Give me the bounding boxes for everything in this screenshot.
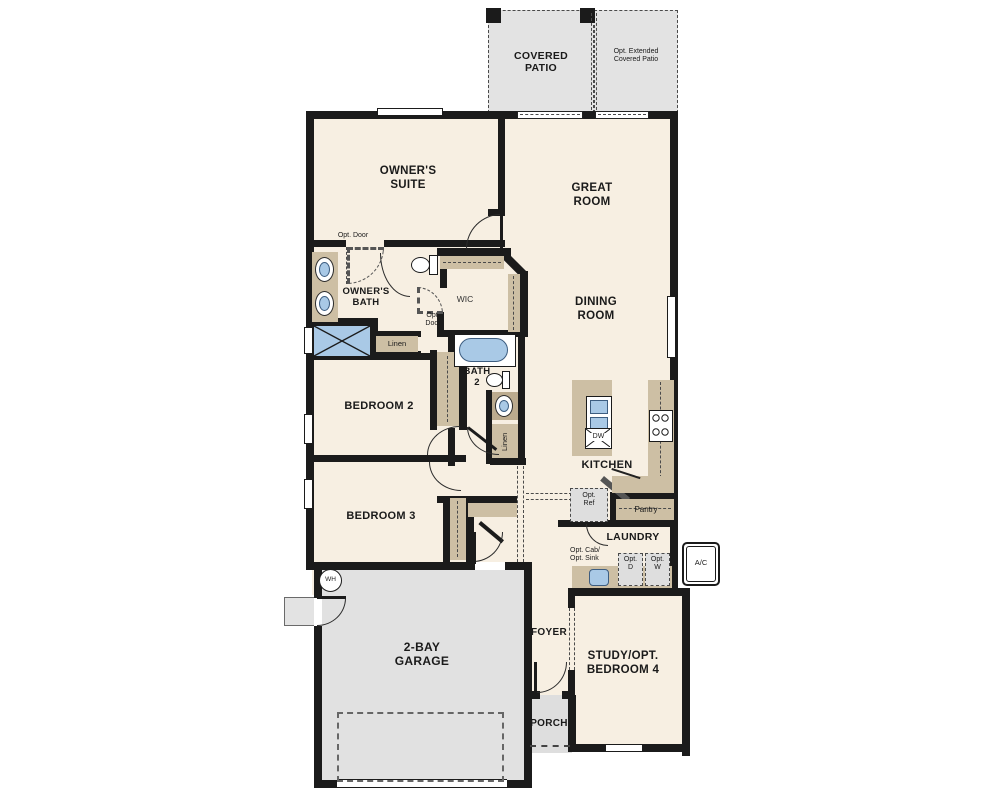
bedroom2-label: BEDROOM 2 (336, 400, 422, 413)
wall (306, 455, 466, 462)
ceiling-break (526, 499, 572, 500)
kitchen-label: KITCHEN (576, 459, 638, 472)
wic-shelf (508, 274, 520, 332)
wall (443, 496, 450, 562)
bedroom3-label: BEDROOM 3 (338, 510, 424, 523)
porch-edge-dashed (530, 745, 570, 747)
window (667, 296, 676, 358)
laundry-sink-icon (589, 569, 609, 586)
patio-divider-line (591, 13, 592, 110)
foyer-label: FOYER (526, 627, 572, 639)
opt-extended-patio-label: Opt. Extended Covered Patio (596, 48, 676, 65)
wall (430, 350, 437, 430)
optional-wall (574, 608, 575, 670)
wall (610, 520, 678, 527)
great-room-label: GREAT ROOM (564, 182, 620, 209)
linen-label: Linen (379, 340, 415, 349)
ceiling-break (517, 466, 518, 562)
window (304, 414, 313, 444)
wall (518, 330, 525, 464)
optional-wall (569, 608, 570, 670)
porch-label: PORCH (526, 718, 572, 730)
garage-label: 2-BAY GARAGE (378, 640, 466, 668)
sliding-door (517, 111, 583, 119)
opt-d-label: Opt. D (619, 556, 642, 573)
front-door-leaf (534, 662, 537, 695)
garage-stoop (284, 597, 317, 626)
wall (306, 240, 346, 247)
opt-door-leaf (346, 247, 347, 284)
study-label: STUDY/OPT. BEDROOM 4 (576, 650, 670, 677)
door-leaf (473, 532, 476, 564)
floor-plan: COVERED PATIO Opt. Extended Covered Pati… (0, 0, 1000, 800)
hall-closet-shelf (468, 503, 517, 517)
dining-room-label: DINING ROOM (566, 296, 626, 323)
sliding-door-track (520, 114, 580, 115)
range-icon (649, 410, 673, 442)
wall (568, 670, 575, 696)
wall (682, 588, 690, 756)
window (377, 108, 443, 116)
opt-door-label: Opt. Door (330, 232, 376, 240)
covered-patio-label: COVERED PATIO (494, 50, 588, 75)
wall (490, 458, 526, 465)
closet-rod (457, 501, 458, 557)
bathtub-icon (454, 334, 516, 367)
wall (568, 596, 575, 608)
opt-w-label: Opt. W (646, 556, 669, 573)
patio-post (486, 8, 501, 23)
toilet-tank (502, 371, 510, 389)
sliding-door-track (598, 114, 646, 115)
wic-label: WIC (452, 294, 478, 304)
opt-ref-label: Opt. Ref (574, 492, 604, 509)
owners-bath-label: OWNER'S BATH (338, 286, 394, 308)
wall (568, 588, 690, 596)
sink-icon (315, 257, 334, 282)
patio-post (580, 8, 595, 23)
wh-label: WH (319, 576, 342, 584)
door-leaf (500, 214, 503, 250)
shower-icon (312, 324, 372, 358)
wall (524, 566, 532, 788)
ac-label: A/C (682, 559, 720, 568)
dw-label: DW (589, 433, 608, 441)
toilet-icon (411, 257, 430, 273)
sink-icon (315, 291, 334, 316)
window (605, 744, 643, 752)
toilet-tank (429, 255, 438, 275)
garage-apron-dashed (337, 712, 504, 782)
door-leaf (317, 596, 346, 599)
bedroom3-closet (450, 498, 466, 560)
wall (498, 111, 505, 216)
wic-shelf-rod (513, 276, 514, 330)
owners-suite-label: OWNER'S SUITE (372, 165, 444, 192)
sink-icon (495, 395, 513, 417)
wall (520, 271, 528, 337)
opt-cab-sink-label: Opt. Cab/ Opt. Sink (570, 547, 618, 564)
window (304, 479, 313, 509)
closet-rod (447, 356, 448, 422)
ceiling-break (526, 493, 572, 494)
wic-shelf-rod (443, 262, 501, 263)
pantry-label: Pantry (620, 505, 672, 514)
bath2-label: BATH 2 (458, 366, 496, 388)
kitchen-counter-corner (612, 476, 674, 493)
opt-door-label: Opt. Door (420, 312, 446, 329)
ceiling-break (523, 466, 524, 562)
linen2-label: Linen (496, 426, 514, 458)
laundry-label: LAUNDRY (604, 531, 662, 543)
door-opening (475, 562, 505, 570)
sliding-door (595, 111, 649, 119)
